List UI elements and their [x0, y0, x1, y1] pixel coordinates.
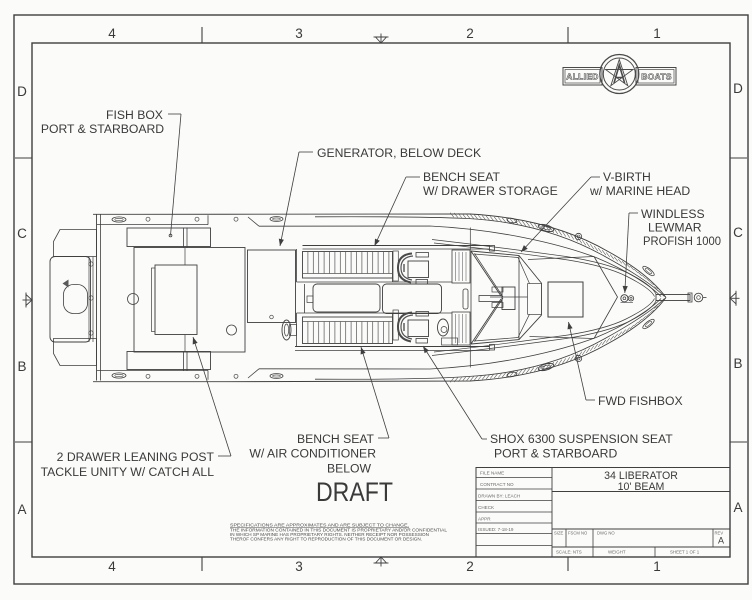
svg-text:C: C [17, 226, 27, 241]
svg-text:3: 3 [295, 559, 303, 574]
svg-text:GENERATOR, BELOW DECK: GENERATOR, BELOW DECK [317, 146, 481, 160]
svg-text:WINDLESS: WINDLESS [641, 207, 705, 221]
svg-text:DWG NO: DWG NO [597, 531, 615, 536]
svg-text:CHECK: CHECK [478, 505, 495, 510]
svg-text:APPR: APPR [478, 517, 491, 522]
svg-text:3: 3 [295, 26, 303, 41]
svg-text:D: D [733, 81, 743, 96]
svg-text:BELOW: BELOW [327, 462, 372, 476]
svg-text:D: D [17, 84, 27, 99]
svg-text:B: B [17, 359, 26, 374]
svg-text:PORT & STARBOARD: PORT & STARBOARD [494, 447, 617, 461]
svg-text:W/ DRAWER STORAGE: W/ DRAWER STORAGE [423, 184, 558, 198]
svg-text:2: 2 [466, 559, 474, 574]
svg-text:A: A [17, 502, 26, 517]
svg-text:FISH BOX: FISH BOX [106, 108, 163, 122]
svg-text:V-BIRTH: V-BIRTH [603, 170, 651, 184]
svg-text:A: A [733, 500, 742, 515]
svg-text:SHOX 6300 SUSPENSION SEAT: SHOX 6300 SUSPENSION SEAT [490, 432, 673, 446]
svg-text:10' BEAM: 10' BEAM [618, 481, 665, 493]
svg-text:B: B [733, 356, 742, 371]
svg-text:2: 2 [466, 26, 474, 41]
svg-text:1: 1 [653, 559, 661, 574]
svg-text:ISSUED: 7-18-19: ISSUED: 7-18-19 [478, 527, 514, 532]
svg-text:TACKLE UNITY W/ CATCH ALL: TACKLE UNITY W/ CATCH ALL [41, 465, 215, 479]
svg-text:4: 4 [108, 26, 116, 41]
svg-text:PROFISH 1000: PROFISH 1000 [643, 234, 721, 248]
svg-text:BENCH SEAT: BENCH SEAT [297, 432, 375, 446]
svg-text:BENCH SEAT: BENCH SEAT [423, 170, 501, 184]
svg-text:SHEET 1 OF 1: SHEET 1 OF 1 [670, 550, 700, 555]
svg-text:1: 1 [653, 26, 661, 41]
svg-text:4: 4 [108, 559, 116, 574]
svg-text:FILE NAME: FILE NAME [480, 471, 504, 476]
svg-text:WEIGHT: WEIGHT [608, 550, 626, 555]
svg-text:FWD FISHBOX: FWD FISHBOX [598, 394, 683, 408]
svg-text:ALLIED: ALLIED [566, 72, 599, 82]
svg-text:PORT & STARBOARD: PORT & STARBOARD [41, 122, 164, 136]
svg-text:2 DRAWER LEANING POST: 2 DRAWER LEANING POST [57, 450, 215, 464]
svg-text:C: C [733, 225, 743, 240]
svg-text:LEWMAR: LEWMAR [648, 221, 702, 235]
svg-text:CONTRACT NO: CONTRACT NO [480, 482, 514, 487]
svg-text:BOATS: BOATS [641, 72, 672, 82]
svg-text:FSCM NO: FSCM NO [568, 531, 588, 536]
svg-text:SCALE: NTS: SCALE: NTS [556, 550, 582, 555]
svg-text:w/ MARINE HEAD: w/ MARINE HEAD [589, 184, 690, 198]
svg-text:THEROF CONFERS ANY RIGHT TO RE: THEROF CONFERS ANY RIGHT TO REPRODUCTION… [230, 537, 422, 542]
svg-text:SIZE: SIZE [554, 531, 564, 536]
svg-text:DRAWN BY: LEACH: DRAWN BY: LEACH [478, 494, 520, 499]
svg-text:DRAFT: DRAFT [316, 477, 393, 507]
svg-text:A: A [718, 536, 724, 546]
svg-text:W/ AIR CONDITIONER: W/ AIR CONDITIONER [249, 447, 376, 461]
